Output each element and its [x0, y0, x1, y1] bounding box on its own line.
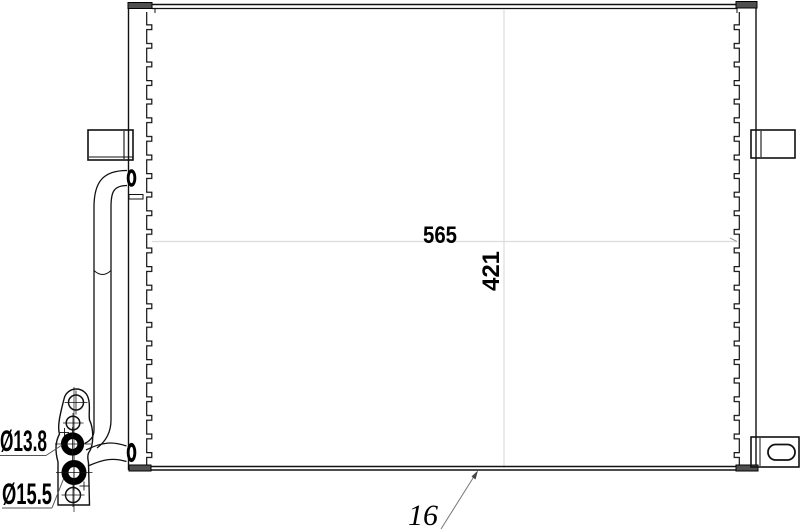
bolt-hole-bottom	[62, 484, 85, 507]
right-mounting-bracket	[751, 130, 795, 158]
tank-tab	[129, 195, 143, 200]
bottom-right-cap	[736, 465, 758, 471]
pipe-assembly	[85, 169, 144, 466]
mounting-brackets	[88, 130, 799, 467]
port-top-leader	[46, 445, 62, 456]
pipe-bend-mark	[94, 271, 111, 275]
bolt-hole-top	[65, 391, 88, 415]
drawing-canvas: 565 421 16 Ø13.8 Ø15.5	[0, 0, 800, 532]
bolt-hole-mid	[63, 413, 84, 434]
lower-pipe-bottom-line	[88, 459, 127, 466]
port-top-diameter-label: Ø13.8	[0, 425, 47, 458]
top-left-cap	[128, 3, 152, 9]
left-mounting-bracket	[88, 130, 133, 160]
pipe-inner-line	[111, 186, 127, 421]
bottom-left-cap	[129, 465, 151, 471]
thickness-leader	[441, 473, 477, 530]
core-width-label: 565	[423, 222, 457, 249]
core-height-label: 421	[478, 251, 505, 291]
condenser-drawing: 565 421 16 Ø13.8 Ø15.5	[0, 0, 800, 532]
bracket-slot	[768, 445, 795, 461]
dimension-annotations: 565 421 16 Ø13.8 Ø15.5	[0, 222, 505, 532]
left-fins	[146, 12, 153, 466]
lower-tank-fitting	[127, 443, 137, 462]
port-bottom-diameter-label: Ø15.5	[2, 478, 52, 511]
core-thickness-label: 16	[408, 499, 438, 532]
right-fins	[734, 12, 741, 466]
upper-tank-fitting	[127, 169, 137, 187]
top-right-cap	[736, 2, 757, 9]
bottom-right-bracket	[751, 437, 799, 467]
